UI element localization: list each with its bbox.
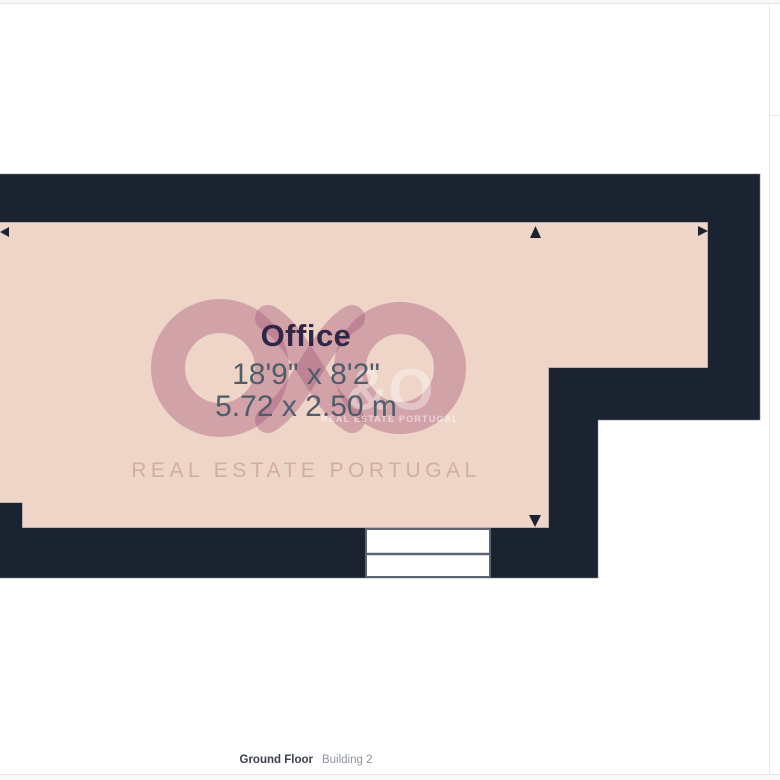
wall-top (0, 174, 760, 222)
building-label: Building 2 (322, 754, 373, 766)
room-dimensions-imperial: 18'9" x 8'2" (232, 358, 380, 392)
watermark-brand-text: REAL ESTATE PORTUGAL (131, 459, 480, 483)
window (366, 529, 490, 577)
wall-bottom-left (0, 528, 366, 578)
floorplan-page: &O REAL ESTATE PORTUGAL REAL ESTATE PORT… (0, 0, 780, 780)
plan-footer: Ground FloorBuilding 2 (240, 752, 373, 768)
room-dimensions-metric: 5.72 x 2.50 m (215, 390, 397, 424)
wall-step (549, 368, 708, 420)
floor-label: Ground Floor (240, 754, 313, 766)
room-name-label: Office (261, 318, 352, 354)
wall-bottom-right (490, 528, 598, 578)
wall-left-notch (0, 503, 22, 528)
wall-right-upper (708, 222, 760, 420)
